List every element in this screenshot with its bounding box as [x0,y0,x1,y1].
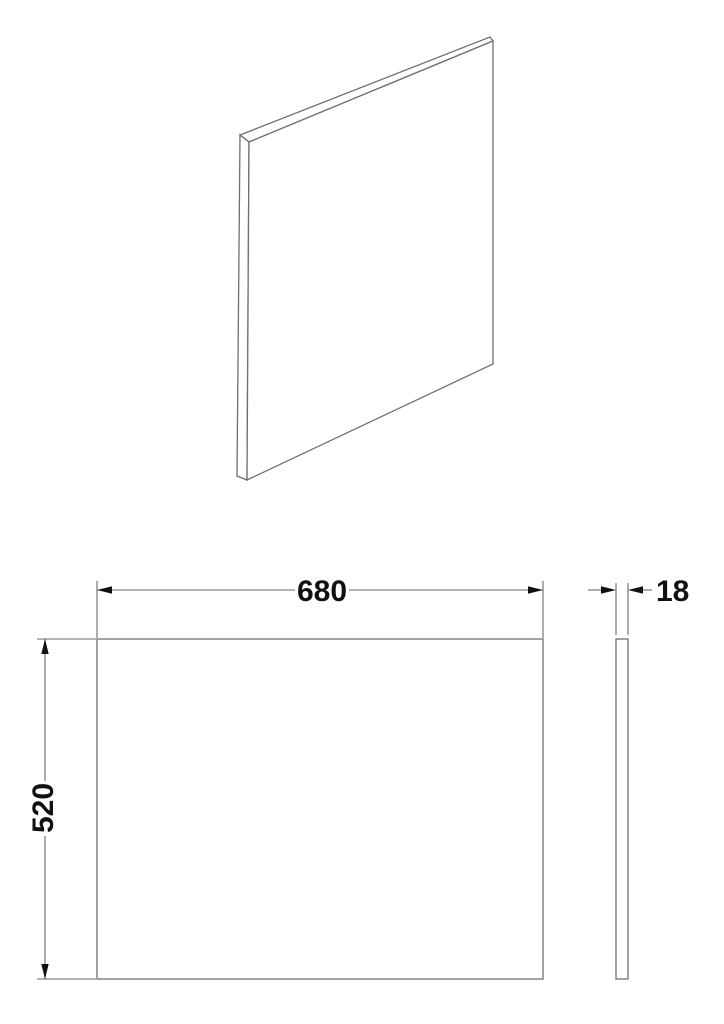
perspective-view [237,37,493,480]
thickness-dimension: 18 [588,575,689,635]
side-view-outline [616,639,628,979]
dimension-arrow [41,964,48,979]
front-view [97,639,543,979]
thickness-dimension-label: 18 [656,575,689,608]
dimension-arrow [528,586,543,593]
height-dimension: 520 [27,639,96,979]
width-dimension: 680 [97,575,543,638]
drawing-canvas: 680 520 18 [0,0,724,1024]
technical-drawing: 680 520 18 [0,0,724,1024]
height-dimension-label: 520 [27,783,60,833]
dimension-arrow [628,586,643,593]
side-view [616,639,628,979]
dimension-arrow [97,586,112,593]
panel-front-face [247,41,493,480]
width-dimension-label: 680 [297,575,347,608]
dimension-arrow [601,586,616,593]
dimension-arrow [41,639,48,654]
front-view-outline [97,639,543,979]
